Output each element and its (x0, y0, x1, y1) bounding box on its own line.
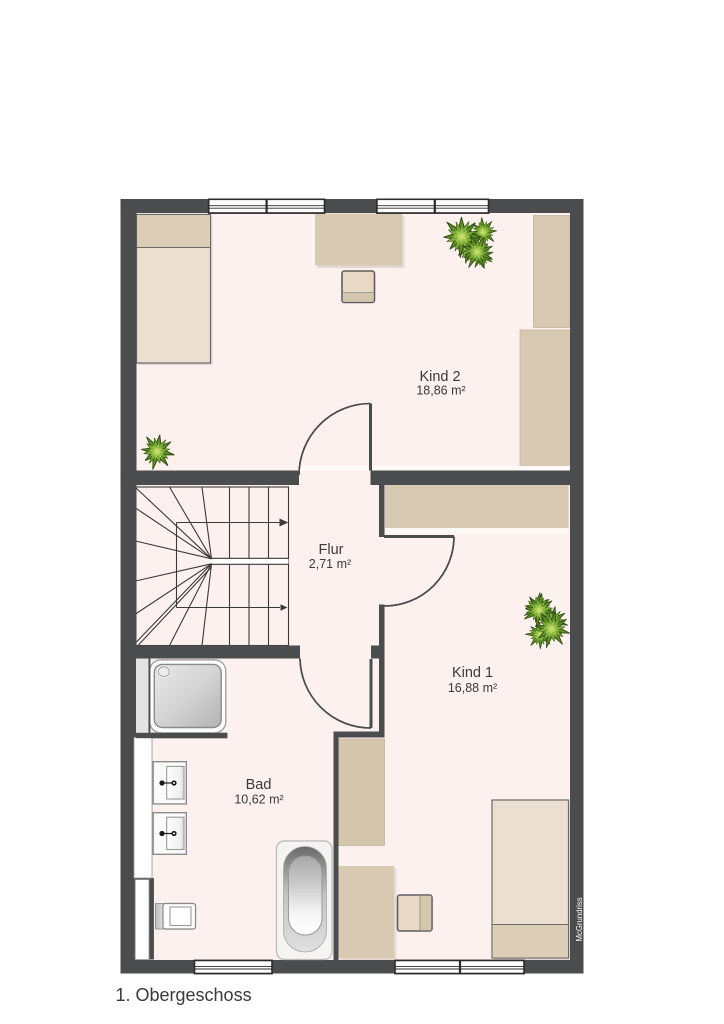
svg-text:2,71 m²: 2,71 m² (309, 557, 351, 571)
svg-text:18,86 m²: 18,86 m² (416, 384, 465, 398)
svg-text:Bad: Bad (246, 777, 272, 793)
svg-text:Kind 1: Kind 1 (452, 665, 493, 681)
svg-text:10,62 m²: 10,62 m² (234, 793, 283, 807)
svg-text:1. Obergeschoss: 1. Obergeschoss (116, 985, 252, 1005)
svg-text:Flur: Flur (319, 542, 344, 558)
svg-text:16,88 m²: 16,88 m² (448, 681, 497, 695)
svg-text:McGrundriss: McGrundriss (575, 897, 584, 941)
